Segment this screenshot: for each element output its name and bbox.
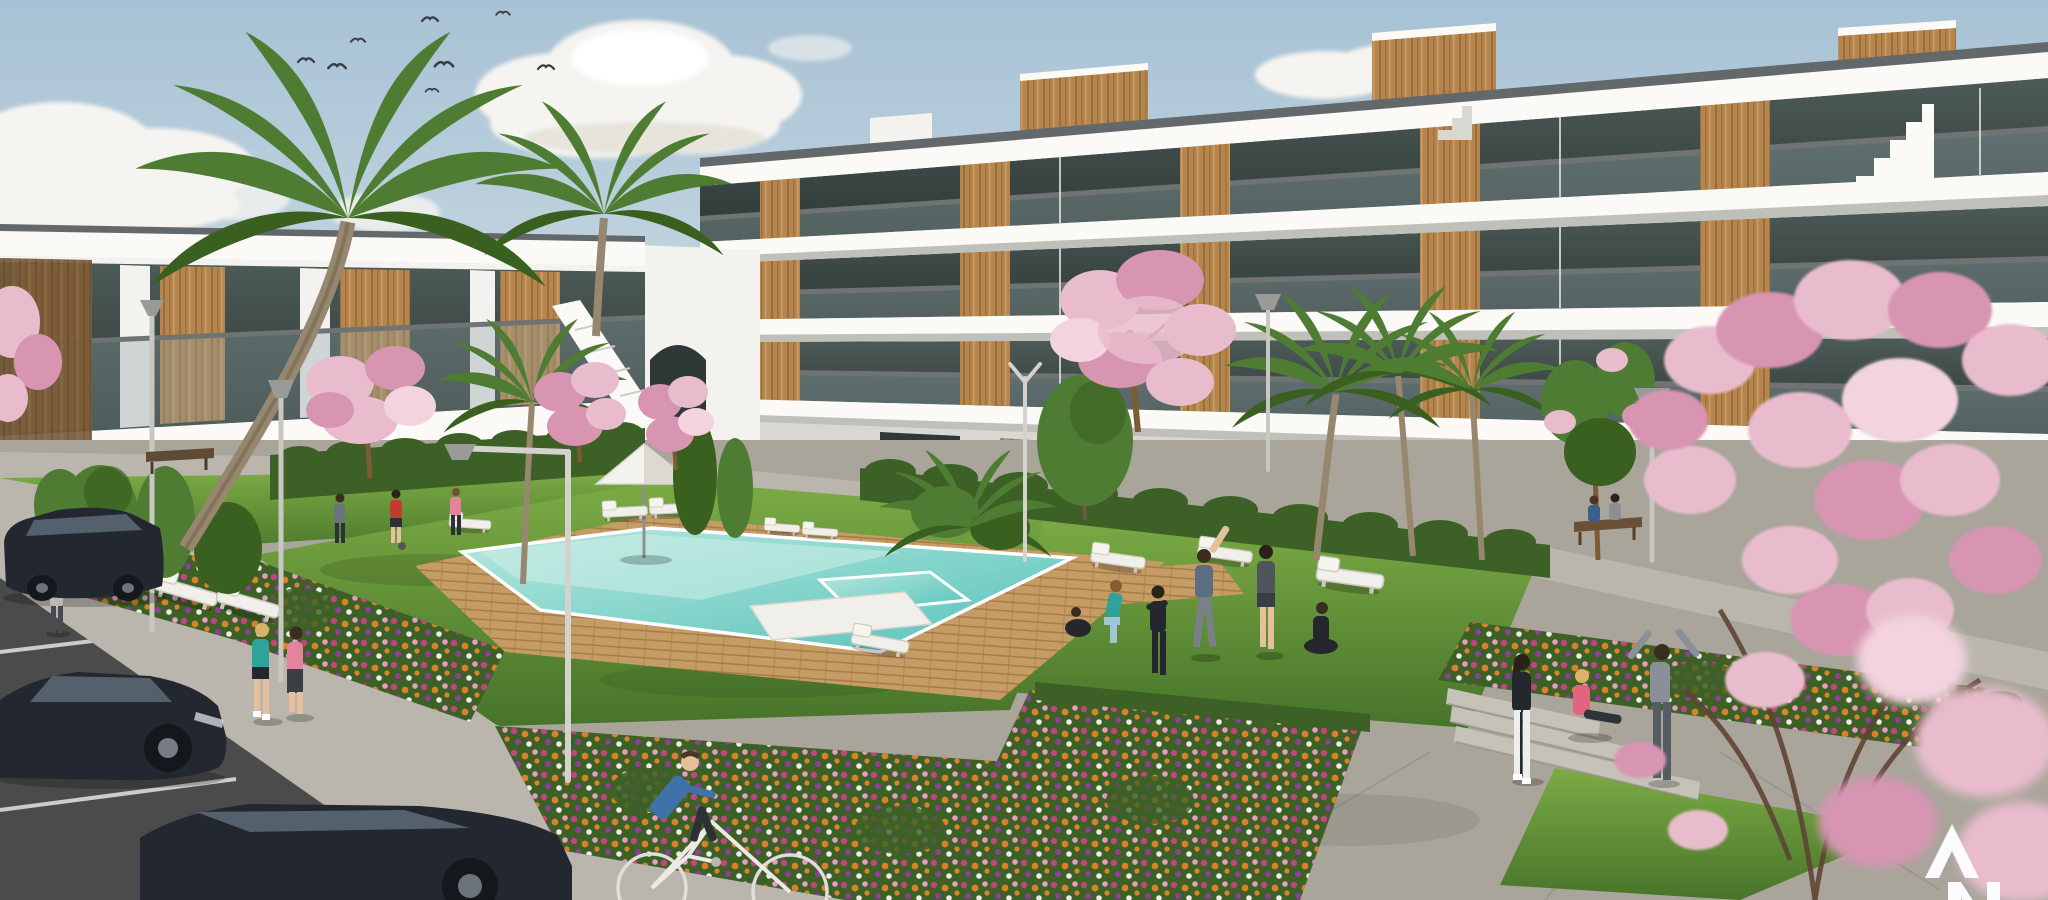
car-suv [140,804,572,900]
car-sedan-near [0,672,226,789]
cloud-tiny [768,35,852,61]
car-sedan-far [3,508,167,607]
person-bench-2 [1609,494,1621,521]
person-bench-1 [1588,496,1600,523]
render-image: Sunlit 3D architectural rendering of a m… [0,0,2048,900]
ball [398,542,406,550]
